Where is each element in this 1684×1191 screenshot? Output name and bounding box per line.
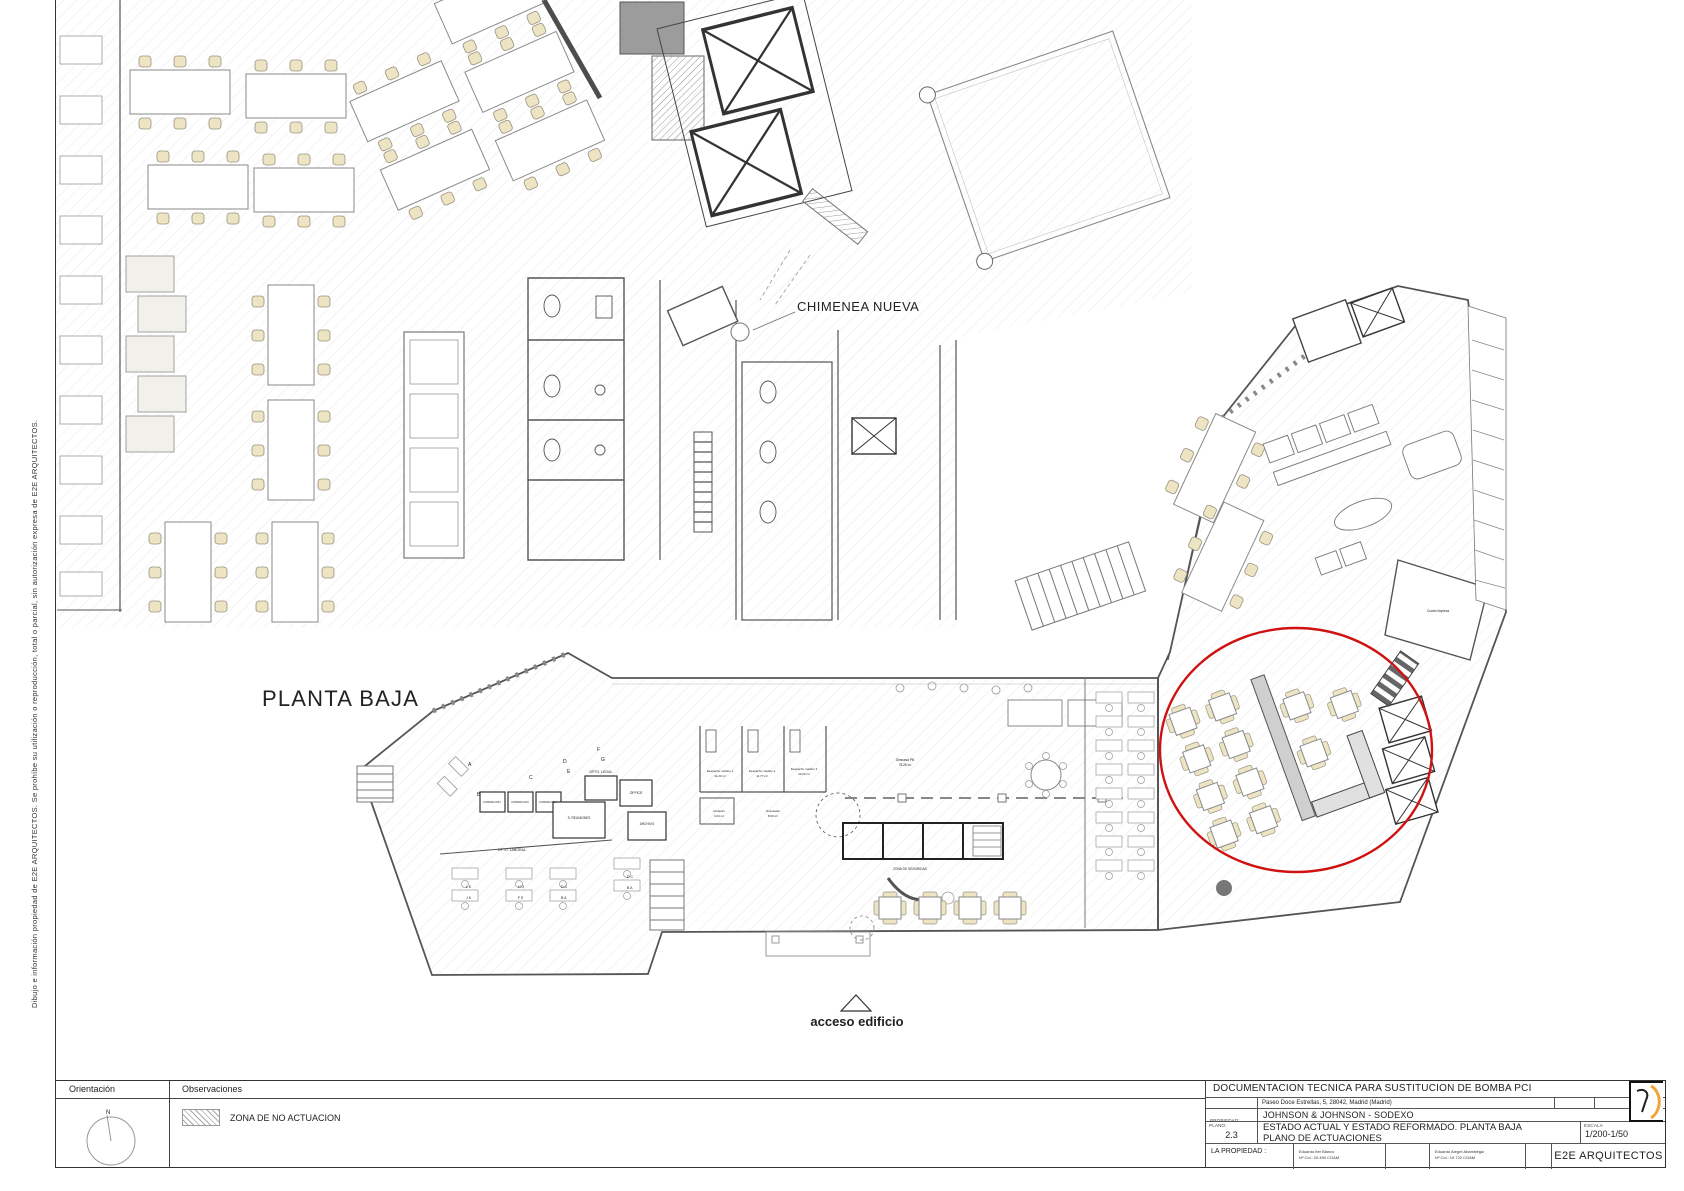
room-label: Orientador (766, 809, 780, 813)
room-label: Almacén (713, 809, 725, 813)
room-label: 8.60 m² (768, 814, 778, 818)
plano-title-line2: PLANO DE ACTUACIONES (1263, 1134, 1580, 1144)
room-label: 11.20 m² (714, 774, 726, 778)
stairs-left (357, 766, 393, 802)
room-label: DPTO. LEGAL (590, 770, 613, 774)
drawing-sheet: CHIMENEA NUEVA PLANTA BAJA (0, 0, 1684, 1191)
room-label: S. REUNIONES (568, 816, 591, 820)
signature-cell-2 (1526, 1144, 1552, 1169)
room-label: FORMACION (511, 800, 528, 804)
architect-1-college: Nº Col.: 20.494 COAM (1299, 1155, 1385, 1161)
room-label: 78.26 m² (899, 763, 912, 767)
title-block: DOCUMENTACION TECNICA PARA SUSTITUCION D… (1205, 1080, 1666, 1168)
architect-2: Eduardo Alegre Abarrátegui Nº Col.: 19.7… (1430, 1144, 1526, 1169)
bottom-panel-header: Orientación Observaciones (55, 1081, 1205, 1099)
zone-letter: D (563, 759, 567, 765)
e2e-logo-mark (1631, 1083, 1661, 1120)
orientation-header: Orientación (55, 1081, 170, 1098)
bottom-panel: Orientación Observaciones N ZONA DE NO A… (55, 1080, 1205, 1168)
upper-floor-plan: CHIMENEA NUEVA (55, 0, 1192, 630)
room-label: ARCHIVO (640, 822, 655, 826)
desk-letter: L K (466, 885, 472, 889)
plan-title: PLANTA BAJA (262, 686, 419, 711)
plano-title-line1: ESTADO ACTUAL Y ESTADO REFORMADO. PLANTA… (1263, 1123, 1580, 1134)
chimenea-nueva-label: CHIMENEA NUEVA (797, 299, 919, 314)
orientation-cell: N (55, 1099, 170, 1168)
north-label: N (106, 1110, 110, 1116)
desk-letter: J K (466, 896, 472, 900)
no-action-zone-label: ZONA DE NO ACTUACION (230, 1113, 341, 1123)
desk-letter: D C (627, 875, 634, 879)
desk-letter: B A (627, 886, 633, 890)
margin-copyright-note: Dibujo e información propiedad de E2E AR… (30, 388, 39, 1008)
room-label: Despacho médico 1 (707, 769, 734, 773)
shaft-small (852, 418, 896, 454)
architect-2-college: Nº Col.: 19.722 COAM (1435, 1155, 1525, 1161)
signature-cell-1 (1386, 1144, 1430, 1169)
room-label: ZONA DE SEGURIDAD (893, 867, 928, 871)
room-label: Despacho médico 3 (791, 767, 818, 771)
propiedad-label: PROPIEDAD: (1206, 1116, 1240, 1121)
kitchen-rack (404, 332, 464, 558)
observations-header: Observaciones (170, 1081, 1205, 1098)
room-label: Cuarto limpieza (1427, 609, 1449, 613)
situacion-value: Paseo Doce Estrellas, 5, 28042, Madrid (… (1258, 1098, 1555, 1108)
stairs-upper (1015, 542, 1145, 630)
zone-letter: F (597, 747, 600, 753)
no-action-zone-swatch (182, 1109, 220, 1126)
desk-letter: H G (518, 885, 525, 889)
escala-label: ESCALA (1584, 1123, 1603, 1128)
room-label: 10.24 m² (798, 772, 810, 776)
zone-letter: C (529, 775, 533, 781)
plano-label: PLANO: (1209, 1123, 1227, 1128)
situacion-label: SITUACION: (1206, 1105, 1238, 1108)
observations-cell: ZONA DE NO ACTUACION (170, 1099, 1205, 1168)
north-compass: N (81, 1105, 141, 1169)
room-label: Despacho médico 2 (749, 769, 776, 773)
legend-item: ZONA DE NO ACTUACION (182, 1109, 341, 1126)
plant (1216, 880, 1232, 896)
zone-letter: G (601, 757, 605, 763)
fase-label: FASE: (1555, 1105, 1573, 1108)
room-label: OFFICE (630, 791, 643, 795)
service-block-hatched (652, 56, 704, 140)
desk-letter: D C (561, 885, 568, 889)
architect-1: Eduardo Iter Blanco Nº Col.: 20.494 COAM (1294, 1144, 1386, 1169)
room-label: FORMACION (539, 800, 556, 804)
room-label: FORMACION (483, 800, 500, 804)
room-label: 11.77 m² (756, 774, 768, 778)
service-block (620, 2, 684, 54)
sheet-frame-left (55, 0, 56, 1168)
acceso-edificio-label: acceso edificio (810, 1014, 903, 1029)
desk-letter: B A (561, 896, 567, 900)
firm-name: E2E ARQUITECTOS (1552, 1144, 1665, 1169)
room-label: DPTO. LABORAL (498, 848, 526, 852)
desk-letter: F E (518, 896, 524, 900)
room-label: 4.04 m² (714, 814, 724, 818)
e2e-logo (1629, 1081, 1663, 1122)
propiedad-value: JOHNSON & JOHNSON - SODEXO (1258, 1109, 1665, 1121)
la-propiedad-label: LA PROPIEDAD : (1206, 1144, 1294, 1169)
access-marker (841, 995, 871, 1011)
document-title: DOCUMENTACION TECNICA PARA SUSTITUCION D… (1206, 1081, 1665, 1097)
room-label: Gimnasio PB (896, 758, 915, 762)
floor-plan-canvas: CHIMENEA NUEVA PLANTA BAJA (0, 0, 1684, 1191)
